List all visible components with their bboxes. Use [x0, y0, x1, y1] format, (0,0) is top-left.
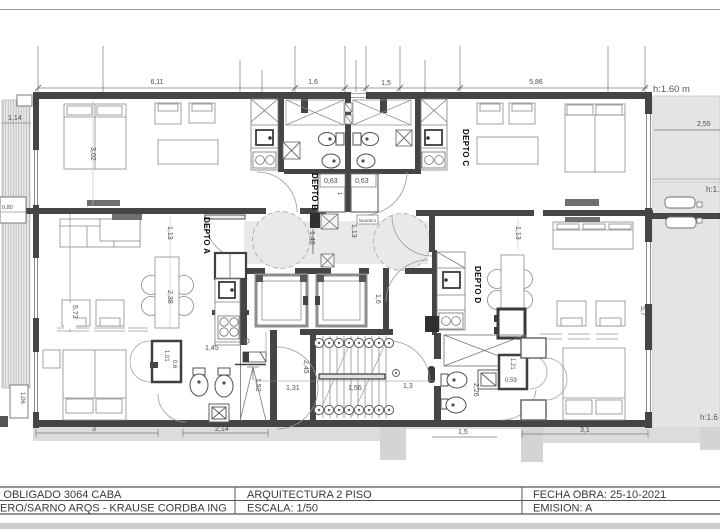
svg-text:5,86: 5,86	[529, 79, 543, 86]
svg-text:1,31: 1,31	[286, 385, 300, 392]
svg-text:0,59: 0,59	[505, 378, 517, 384]
svg-text:1,13: 1,13	[350, 224, 357, 238]
svg-text:ERO/SARNO ARQS - KRAUSE CORDBA: ERO/SARNO ARQS - KRAUSE CORDBA ING	[0, 503, 227, 515]
svg-text:1,21: 1,21	[509, 358, 515, 370]
svg-text:h:1.60 m: h:1.60 m	[653, 84, 690, 95]
svg-text:1,6: 1,6	[308, 79, 318, 86]
svg-text:ARQUITECTURA 2 PISO: ARQUITECTURA 2 PISO	[247, 489, 372, 501]
svg-text:1,45: 1,45	[205, 345, 219, 352]
svg-text:1,6: 1,6	[374, 294, 381, 304]
svg-text:2,14: 2,14	[215, 426, 229, 433]
svg-text:1,52: 1,52	[254, 378, 261, 392]
svg-text:0,80: 0,80	[2, 205, 13, 211]
svg-text:2,55: 2,55	[697, 121, 711, 128]
svg-text:1,5: 1,5	[381, 80, 391, 87]
svg-text:3,02: 3,02	[89, 147, 96, 161]
svg-text:1,13: 1,13	[514, 226, 521, 240]
svg-text:3: 3	[92, 426, 96, 433]
svg-text:DEPTO B: DEPTO B	[310, 173, 319, 211]
svg-text:0,6: 0,6	[171, 360, 177, 369]
svg-text:2,45: 2,45	[302, 360, 309, 374]
svg-text:5,7: 5,7	[639, 306, 646, 316]
svg-text:lavadero: lavadero	[359, 218, 377, 223]
svg-text:1,56: 1,56	[348, 385, 362, 392]
svg-text:1,40: 1,40	[308, 231, 315, 245]
svg-text:RA: OBLIGADO 3064 CABA: RA: OBLIGADO 3064 CABA	[0, 489, 122, 501]
svg-text:2,38: 2,38	[166, 290, 173, 304]
svg-text:6,11: 6,11	[150, 79, 163, 86]
svg-text:1,13: 1,13	[166, 226, 173, 240]
svg-text:h:1.: h:1.	[706, 185, 719, 194]
svg-text:0,63: 0,63	[324, 178, 338, 185]
svg-text:5,73: 5,73	[71, 305, 78, 319]
svg-text:FECHA OBRA: 25-10-2021: FECHA OBRA: 25-10-2021	[533, 489, 666, 501]
svg-text:h:1.6: h:1.6	[700, 413, 718, 422]
svg-text:0,63: 0,63	[355, 178, 369, 185]
svg-text:1,3: 1,3	[403, 383, 413, 390]
svg-text:1,06: 1,06	[19, 392, 25, 404]
svg-text:DEPTO C: DEPTO C	[461, 129, 470, 167]
svg-text:ESCALA: 1/50: ESCALA: 1/50	[247, 503, 318, 515]
svg-text:3,1: 3,1	[580, 427, 590, 434]
svg-text:2,26: 2,26	[472, 383, 479, 397]
svg-text:1,5: 1,5	[458, 429, 468, 436]
svg-text:1,01: 1,01	[163, 350, 169, 362]
svg-text:DEPTO D: DEPTO D	[473, 266, 482, 304]
svg-text:EMISION: A: EMISION: A	[533, 503, 593, 515]
svg-text:1,14: 1,14	[8, 115, 22, 122]
svg-text:DEPTO A: DEPTO A	[202, 217, 211, 254]
